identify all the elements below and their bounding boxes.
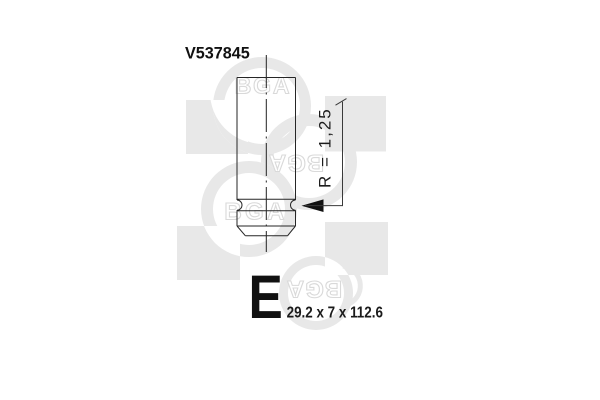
svg-text:R = 1,25: R = 1,25 xyxy=(316,107,335,188)
svg-text:E: E xyxy=(249,263,283,332)
svg-text:BGA: BGA xyxy=(224,199,287,226)
svg-text:V537845: V537845 xyxy=(185,45,250,63)
svg-text:BGA: BGA xyxy=(286,275,342,302)
svg-text:29.2 x 7 x 112.6: 29.2 x 7 x 112.6 xyxy=(287,305,383,322)
svg-text:BGA: BGA xyxy=(235,73,292,99)
